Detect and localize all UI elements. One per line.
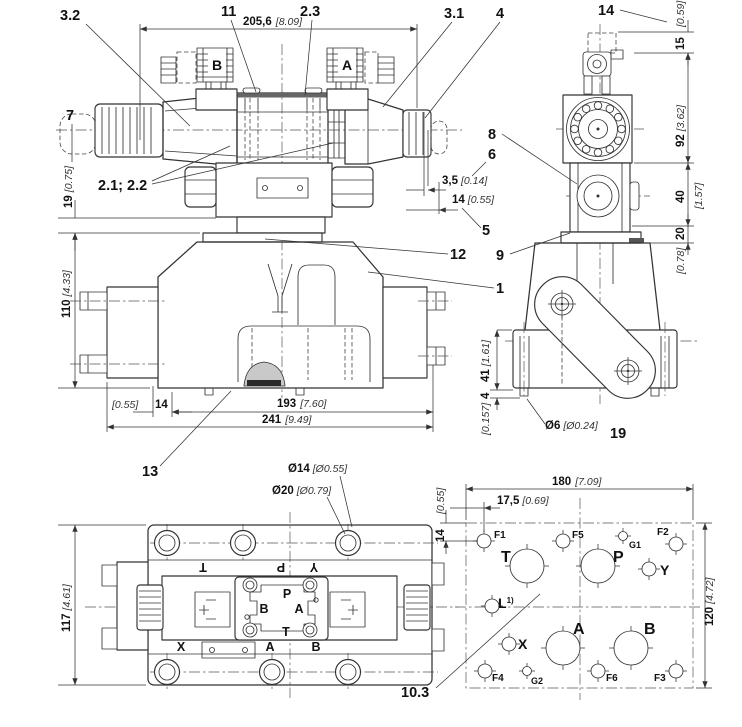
port-label-x: X	[518, 636, 528, 652]
port-label-f1: F1	[494, 530, 506, 541]
dim-hole-d20: Ø20	[272, 485, 294, 497]
svg-text:193[7.60]: 193[7.60]	[277, 398, 328, 410]
port-label-f2: F2	[657, 527, 669, 538]
dim-20: 20	[675, 227, 687, 240]
side-view: [0.59] 15 92[3.62] 40 [1.57] 20 [0.78] 4…	[462, 0, 705, 442]
port-label-f4: F4	[492, 673, 504, 684]
right-knob-bottom	[404, 585, 430, 630]
dim-193: 193	[277, 398, 296, 410]
port-b-hole	[614, 631, 648, 665]
svg-text:205,6[8.09]: 205,6[8.09]	[243, 16, 303, 28]
callout-3-2: 3.2	[60, 8, 80, 24]
connector-top	[583, 50, 623, 94]
dim-15: 15	[675, 37, 687, 50]
label-b: B	[311, 640, 320, 654]
callout-7: 7	[66, 108, 74, 124]
pilot-port-t: T	[282, 625, 290, 639]
dim-180: 180	[552, 476, 571, 488]
nameplate-bottom	[202, 642, 255, 658]
port-label-b: B	[644, 621, 656, 638]
left-knob-bottom	[137, 585, 163, 630]
svg-text:3,5[0.14]: 3,5[0.14]	[442, 175, 488, 187]
dim-4: 4	[480, 392, 492, 399]
callout-3-1: 3.1	[444, 6, 464, 22]
port-label-f5: F5	[572, 530, 584, 541]
svg-text:180[7.09]: 180[7.09]	[552, 476, 603, 488]
pilot-port-b: B	[259, 602, 268, 616]
callout-8: 8	[488, 127, 496, 143]
port-p-hole	[581, 549, 615, 583]
port-label-f6: F6	[606, 673, 618, 684]
callout-11: 11	[221, 4, 236, 20]
svg-text:14[0.55]: 14[0.55]	[452, 194, 495, 206]
dim-92: 92	[675, 134, 687, 147]
bottom-view: P B A T T P Y X A B 117[4.61] Ø14	[58, 463, 458, 698]
svg-text:120[4.72]: 120[4.72]	[704, 576, 716, 626]
callout-1: 1	[496, 281, 504, 297]
dim-205-6: 205,6	[243, 16, 272, 28]
callout-13: 13	[142, 464, 158, 480]
callout-12: 12	[450, 247, 466, 263]
callout-5: 5	[482, 223, 490, 239]
svg-text:19[0.75]: 19[0.75]	[63, 165, 75, 208]
svg-text:Ø6[Ø0.24]: Ø6[Ø0.24]	[545, 420, 599, 432]
callout-19: 19	[610, 426, 626, 442]
label-x: X	[177, 640, 186, 654]
dim-hole-d14: Ø14	[288, 463, 310, 475]
port-label-t: T	[501, 549, 511, 566]
subplate-block	[185, 163, 373, 217]
dim-0157: [0.157]	[480, 402, 492, 436]
dim-19: 19	[63, 195, 75, 208]
port-label-y: Y	[660, 562, 670, 578]
dim-055-port: [0.55]	[435, 487, 447, 515]
port-label-p: P	[613, 549, 624, 566]
pilot-port-p: P	[283, 587, 291, 601]
svg-text:241[9.49]: 241[9.49]	[262, 414, 313, 426]
drawing-page: B A	[0, 0, 742, 727]
callout-2-3: 2.3	[300, 4, 320, 20]
pilot-valve-side	[570, 163, 639, 232]
callout-6: 6	[488, 147, 496, 163]
dim-14-right: 14	[452, 194, 465, 206]
pilot-interface-bottom: P B A T	[235, 577, 328, 640]
dim-14-port: 14	[435, 529, 447, 542]
dim-059: [0.59]	[675, 0, 687, 28]
port-label-f3: F3	[654, 673, 666, 684]
dim-120: 120	[704, 607, 716, 626]
front-view: B A	[56, 4, 504, 480]
port-t-hole	[510, 549, 544, 583]
coil-label-b: B	[212, 57, 222, 73]
svg-text:Ø14[Ø0.55]: Ø14[Ø0.55]	[288, 463, 348, 475]
callout-14: 14	[598, 3, 614, 19]
interface-plate	[203, 233, 322, 242]
svg-text:117[4.61]: 117[4.61]	[61, 583, 73, 632]
seal-band	[247, 380, 281, 386]
svg-text:41[1.61]: 41[1.61]	[480, 339, 492, 382]
dim-17-5: 17,5	[497, 495, 520, 507]
valve-neck	[237, 217, 325, 233]
dim-41: 41	[480, 369, 492, 382]
coil-label-a: A	[342, 57, 352, 73]
main-valve-body	[70, 242, 452, 395]
dim-241: 241	[262, 414, 282, 426]
callout-9: 9	[496, 248, 504, 264]
technical-drawing: B A	[0, 0, 742, 727]
dim-078: [0.78]	[675, 247, 687, 275]
svg-text:17,5[0.69]: 17,5[0.69]	[497, 495, 550, 507]
left-knurled-knob	[95, 104, 163, 157]
rotated-label-y: Y	[309, 560, 318, 574]
port-label-g1: G1	[629, 540, 641, 550]
label-a: A	[265, 640, 274, 654]
dim-117: 117	[61, 613, 73, 632]
main-body-side	[513, 243, 677, 409]
svg-text:Ø20[Ø0.79]: Ø20[Ø0.79]	[272, 485, 332, 497]
dim-3-5: 3,5	[442, 175, 459, 187]
pilot-port-a: A	[294, 602, 303, 616]
svg-text:L1): L1)	[498, 595, 514, 611]
dim-40: 40	[675, 190, 687, 203]
dim-14-left: 14	[155, 399, 168, 411]
port-pattern-view: F1 F5 G1 F2 T P Y L1) X A B F4 G2 F6 F3 …	[401, 476, 716, 701]
solenoid-coil-housing	[563, 95, 632, 163]
port-label-g2: G2	[531, 676, 543, 686]
callout-2-1-2-2: 2.1; 2.2	[98, 178, 147, 194]
coil-a-connector: A	[327, 48, 394, 110]
dim-pin-d6: Ø6	[545, 420, 560, 432]
rotated-label-t: T	[199, 560, 207, 574]
adapter-screw	[629, 238, 644, 243]
rotated-label-p: P	[277, 560, 285, 574]
dim-055: [0.55]	[111, 399, 139, 411]
callout-10-3: 10.3	[401, 685, 429, 701]
port-label-a: A	[573, 621, 585, 638]
dim-157: [1.57]	[693, 182, 705, 210]
svg-text:92[3.62]: 92[3.62]	[675, 104, 687, 147]
dim-110: 110	[61, 299, 73, 318]
callout-4: 4	[496, 6, 504, 22]
svg-text:110[4.33]: 110[4.33]	[61, 269, 73, 318]
